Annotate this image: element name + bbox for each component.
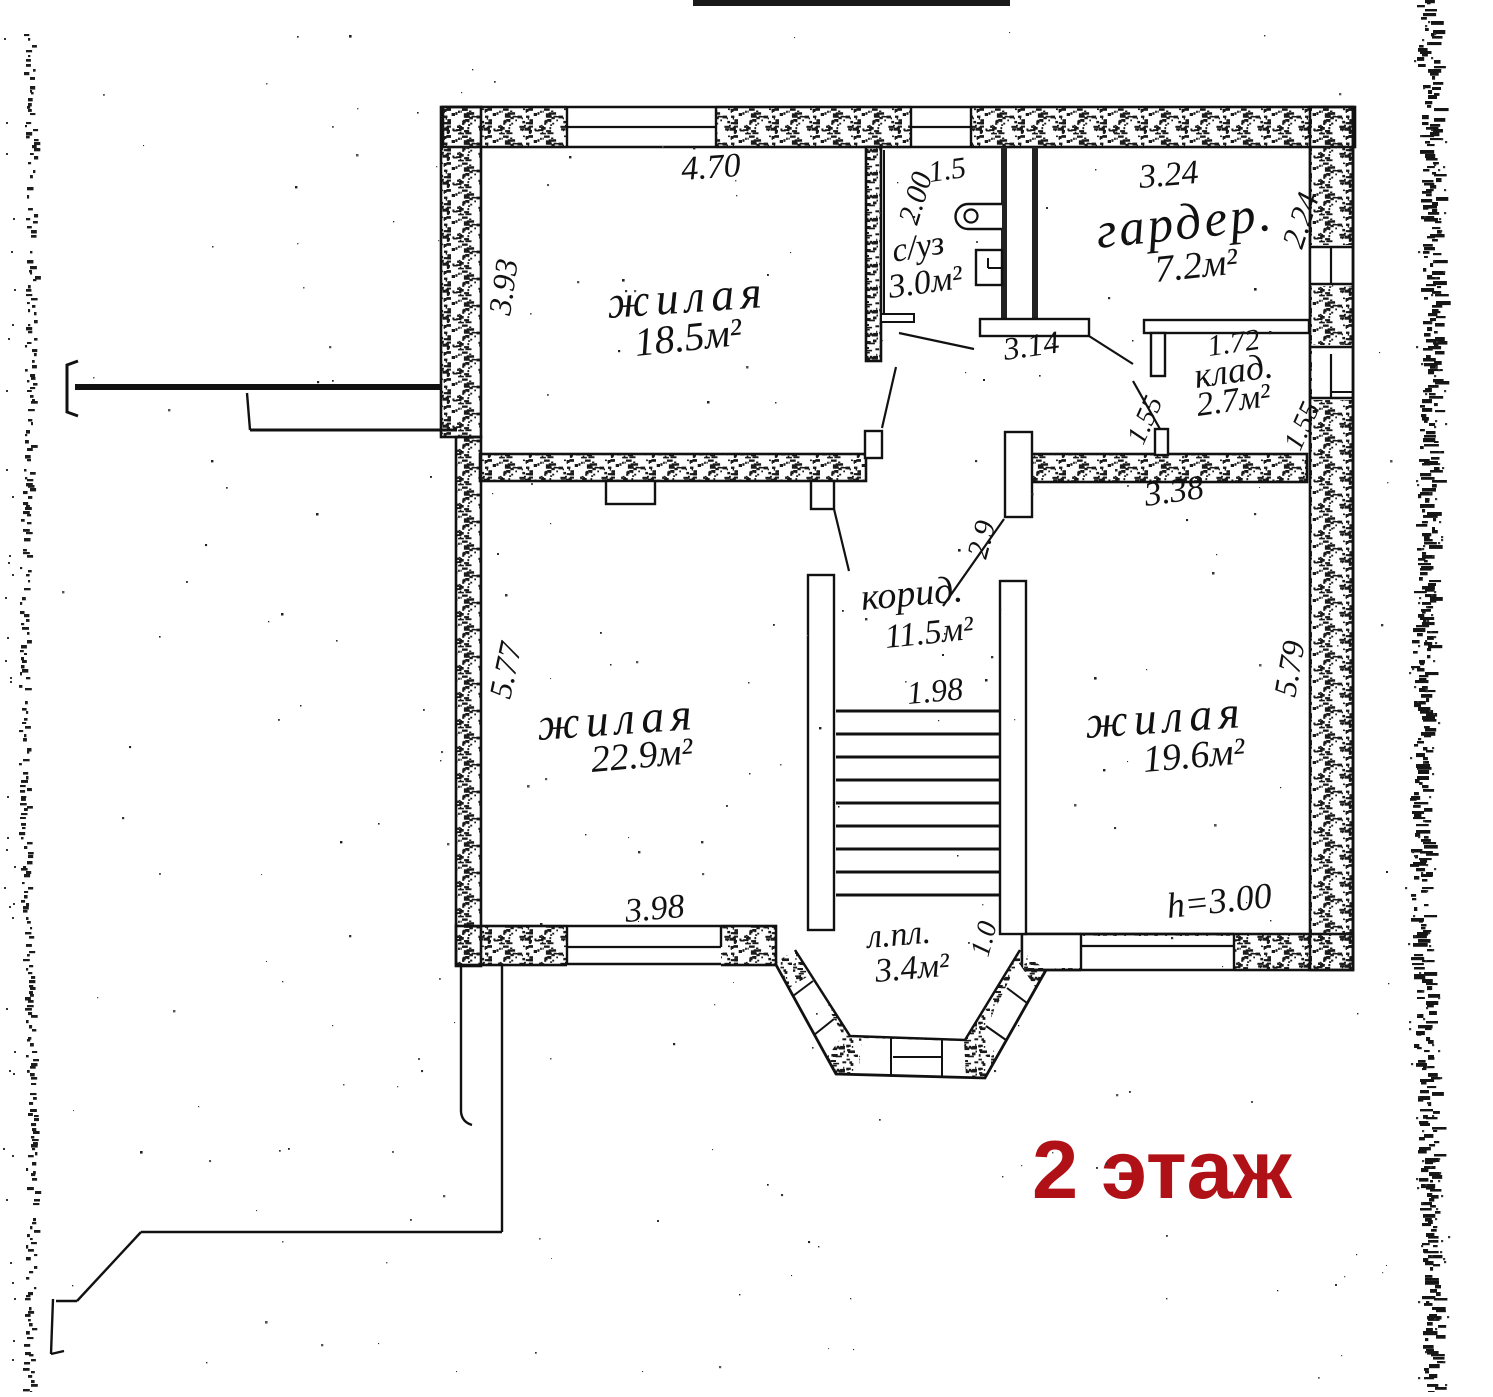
svg-text:4.70: 4.70 (680, 147, 742, 188)
svg-text:3.4м²: 3.4м² (872, 947, 951, 991)
svg-text:1.98: 1.98 (905, 670, 964, 711)
svg-text:22.9м²: 22.9м² (589, 730, 695, 781)
svg-text:7.2м²: 7.2м² (1153, 240, 1241, 291)
svg-text:3.98: 3.98 (622, 888, 685, 930)
svg-text:2 этаж: 2 этаж (1032, 1123, 1293, 1216)
svg-text:3.24: 3.24 (1136, 154, 1199, 196)
svg-text:19.6м²: 19.6м² (1141, 730, 1247, 781)
